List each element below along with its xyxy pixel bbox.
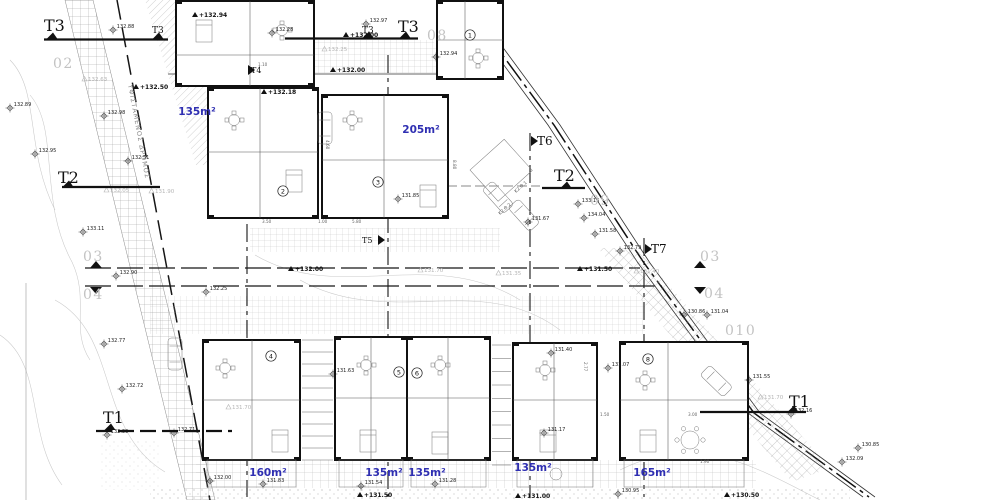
dim-label: 5.80 [352,219,362,224]
spot-elevation: 132.25 [202,286,228,296]
svg-text:132.28: 132.28 [276,27,294,33]
svg-text:132.72: 132.72 [126,383,144,389]
svg-text:132.88: 132.88 [117,24,135,30]
svg-text:134.04: 134.04 [588,212,606,218]
spot-elevation: 130.85 [854,442,880,452]
dim-label: 3.50 [262,219,272,224]
section-marker-T3: T3 [44,16,168,40]
dim-label: 4.60 [325,140,330,150]
svg-text:T3: T3 [362,26,374,36]
svg-text:T4: T4 [251,66,261,75]
dim-label: 1.10 [258,62,268,67]
svg-text:+131.50: +131.50 [584,266,612,273]
section-marker-T6: T6 [531,134,553,148]
svg-text:+132.00: +132.00 [295,266,323,273]
dim-label: 1.90 [700,459,710,464]
building-8 [620,342,748,460]
section-marker-T7: T7 [645,242,667,256]
svg-text:4: 4 [269,352,273,360]
unit-number: 1 [465,30,475,40]
unit-number: 3 [373,177,383,187]
svg-text:131.70: 131.70 [764,395,784,401]
boundary-point-label: 03 [700,249,721,265]
dim-label: 3.00 [688,412,698,417]
svg-text:131.85: 131.85 [402,193,420,199]
svg-text:6: 6 [415,369,419,377]
boundary-point-label: 09 [590,193,611,209]
svg-text:131.70: 131.70 [424,268,444,274]
svg-text:130.95: 130.95 [622,488,640,494]
svg-text:132.89: 132.89 [14,102,32,108]
svg-text:131.07: 131.07 [612,362,630,368]
svg-text:T2: T2 [554,166,575,185]
svg-text:133.11: 133.11 [87,226,105,232]
unit-number: 5 [394,367,404,377]
svg-text:131.35: 131.35 [502,271,522,277]
area-label: 135m² [178,106,216,118]
svg-text:T1: T1 [103,408,124,427]
svg-text:132.95: 132.95 [39,148,57,154]
svg-text:8: 8 [646,355,650,363]
svg-text:131.55: 131.55 [753,374,771,380]
level-label: +132.00 [288,266,323,273]
area-label: 160m² [249,467,287,479]
svg-text:131.58: 131.58 [599,228,617,234]
level-label-gray: 132.05 [104,188,130,195]
svg-text:131.70: 131.70 [232,405,252,411]
building-4 [203,340,300,460]
building-6 [407,337,490,460]
svg-text:130.85: 130.85 [862,442,880,448]
svg-text:132.94: 132.94 [440,51,458,57]
spot-elevation: 131.67 [524,216,550,226]
boundary-point-label: 02 [53,56,74,72]
stairs [302,340,333,460]
boundary-point-label: 04 [83,287,104,303]
svg-text:1: 1 [468,31,472,39]
svg-text:T2: T2 [58,168,79,187]
svg-text:+132.50: +132.50 [140,84,168,91]
boundary-point-label: 010 [725,323,756,339]
svg-text:3: 3 [376,178,380,186]
svg-text:132.05: 132.05 [110,188,130,194]
spot-elevation: 132.88 [109,24,135,34]
svg-text:+131.50: +131.50 [364,492,392,499]
level-label: +132.50 [133,84,168,91]
unit-number: 2 [278,186,288,196]
svg-text:132.09: 132.09 [846,456,864,462]
svg-text:131.90: 131.90 [155,189,175,195]
svg-text:T6: T6 [537,134,553,148]
spot-elevation: 132.09 [838,456,864,466]
area-label: 165m² [633,467,671,479]
stairs [492,345,511,465]
spot-elevation: 131.58 [591,228,617,238]
svg-text:T3: T3 [44,16,65,35]
svg-text:132.98: 132.98 [108,110,126,116]
area-label: 135m² [514,462,552,474]
spot-elevation: 131.04 [703,309,729,319]
svg-text:132.25: 132.25 [210,286,228,292]
building-3 [322,95,448,218]
dim-label: 2.77 [583,362,588,372]
spot-elevation: 132.95 [31,148,57,158]
svg-text:131.63: 131.63 [337,368,355,374]
svg-text:T3: T3 [152,26,164,36]
svg-text:132.63: 132.63 [88,77,108,83]
building-7 [513,343,597,460]
svg-text:2: 2 [281,187,285,195]
svg-text:T3: T3 [398,17,419,36]
svg-text:131.28: 131.28 [439,478,457,484]
svg-text:131.40: 131.40 [640,269,660,275]
carport-outline [470,139,532,201]
section-marker-T2: T2 [542,166,585,188]
svg-text:132.25: 132.25 [328,47,348,53]
boundary-point-label: 08 [427,28,448,44]
svg-text:132.77: 132.77 [108,338,126,344]
dim-label: 8.80 [452,160,457,170]
parking-space-label: Κ2.Θ.1 [513,180,528,195]
spot-elevation: 133.11 [79,226,105,236]
middle-road [85,228,706,334]
area-label: 135m² [365,467,403,479]
unit-number: 4 [266,351,276,361]
svg-text:+132.00: +132.00 [337,67,365,74]
svg-text:131.83: 131.83 [267,478,285,484]
building-2 [208,88,318,218]
parking-space-label: Κ2.Θ.2 [497,202,512,217]
site-plan-canvas: 132.88132.97132.94132.28132.89132.98132.… [0,0,1000,500]
unit-number: 8 [643,354,653,364]
svg-text:131.17: 131.17 [548,427,566,433]
svg-text:+132.18: +132.18 [268,89,296,96]
svg-text:131.54: 131.54 [365,480,383,486]
building-1b [176,1,314,86]
svg-text:131.40: 131.40 [555,347,573,353]
level-label: +131.50 [577,266,612,273]
spot-elevation: 132.89 [6,102,32,112]
svg-text:132.00: 132.00 [214,475,232,481]
svg-text:130.86: 130.86 [688,309,706,315]
spot-elevation: 134.04 [580,212,606,222]
svg-text:T1: T1 [789,392,810,411]
dim-label: 1.00 [318,219,328,224]
svg-text:132.97: 132.97 [370,18,388,24]
svg-text:5: 5 [397,368,401,376]
svg-text:131.04: 131.04 [711,309,729,315]
dim-label: 1.50 [600,412,610,417]
boundary-point-label: 04 [704,286,725,302]
svg-text:132.79: 132.79 [624,245,642,251]
svg-text:+130.50: +130.50 [731,492,759,499]
svg-text:131.67: 131.67 [532,216,550,222]
boundary-point-label: 03 [83,249,104,265]
level-label-gray: 131.35 [496,271,522,278]
svg-text:T7: T7 [651,242,667,256]
svg-text:132.90: 132.90 [120,270,138,276]
area-label: 205m² [402,124,440,136]
svg-text:+131.00: +131.00 [522,493,550,500]
spot-elevation: 132.72 [118,383,144,393]
spot-elevation: 132.77 [100,338,126,348]
area-label: 135m² [408,467,446,479]
unit-number: 6 [412,368,422,378]
svg-text:+132.94: +132.94 [199,12,227,19]
site-plan-drawing: 132.88132.97132.94132.28132.89132.98132.… [0,0,1000,500]
building-5 [335,337,407,460]
svg-text:T5: T5 [362,236,372,245]
